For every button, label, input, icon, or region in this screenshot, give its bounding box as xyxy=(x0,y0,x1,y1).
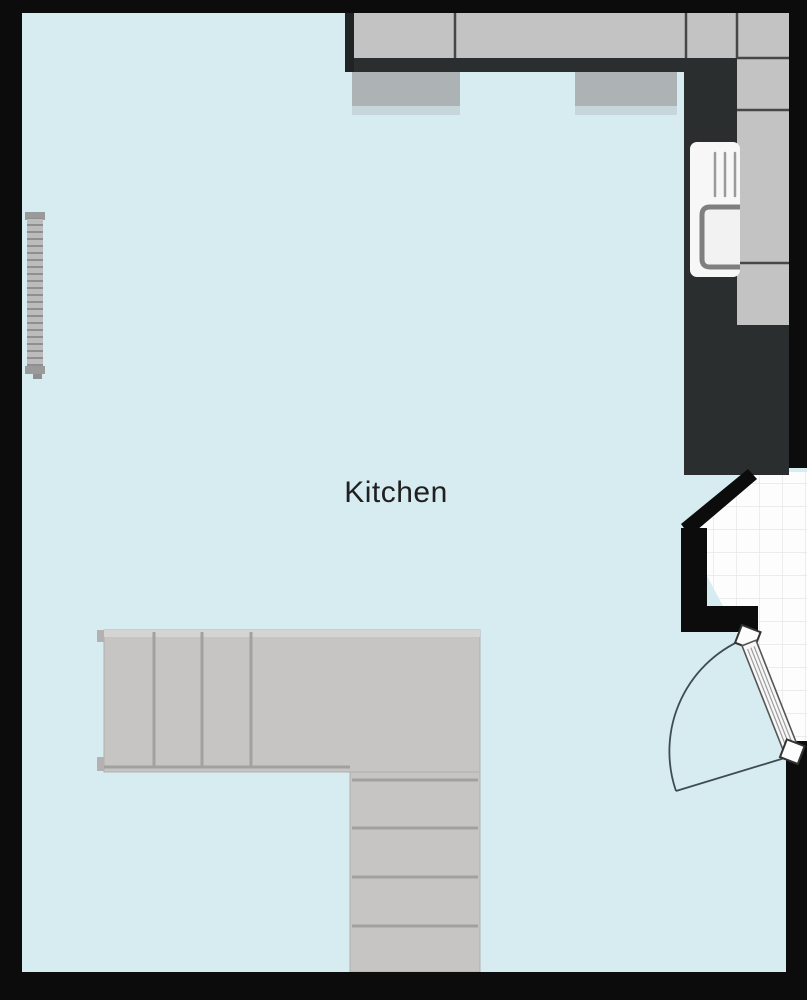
staircase xyxy=(97,630,480,972)
sink-unit xyxy=(690,142,740,277)
stair-lower-run xyxy=(350,772,480,972)
counter-right-run xyxy=(737,13,789,325)
room-label: Kitchen xyxy=(344,476,448,510)
tall-unit-lower xyxy=(737,325,789,475)
wall-cabinet-left-shadow xyxy=(352,106,460,115)
kitchen-floor-plan: Kitchen xyxy=(0,0,807,1000)
radiator xyxy=(25,212,45,379)
door-swing-radius xyxy=(676,757,788,791)
door-swing-arc xyxy=(669,637,749,791)
wall-cabinet-right-shadow xyxy=(575,106,677,115)
wall-cabinet-left xyxy=(352,72,460,106)
radiator-body xyxy=(27,218,43,368)
sink-basin xyxy=(702,207,740,267)
worktop-edge-strip xyxy=(345,58,685,72)
wall-right-lower xyxy=(786,741,807,975)
wall-cabinets xyxy=(352,72,677,115)
radiator-cap-bottom xyxy=(25,366,45,374)
stair-tick-bottom xyxy=(97,757,104,771)
wall-top xyxy=(0,0,807,13)
wall-cabinet-right xyxy=(575,72,677,106)
stair-tick-top xyxy=(97,630,104,642)
wall-bottom xyxy=(0,972,807,1000)
stair-upper-run xyxy=(104,630,480,772)
wall-left xyxy=(0,0,22,1000)
radiator-foot xyxy=(33,374,42,379)
counter-end-panel xyxy=(345,13,354,72)
wall-right-upper xyxy=(789,0,807,468)
counter-top-run xyxy=(353,13,789,58)
stair-top-nosing xyxy=(104,630,480,637)
wall-doorway-left xyxy=(681,528,707,632)
